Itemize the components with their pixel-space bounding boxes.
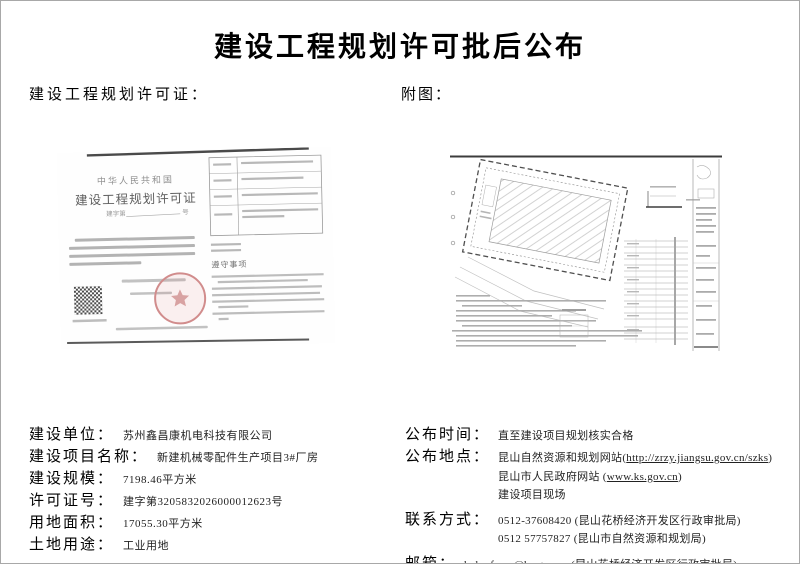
publish-place-line-1: 昆山自然资源和规划网站(http://zrzy.jiangsu.gov.cn/s…: [498, 449, 772, 468]
certificate-body-text-lines: [69, 236, 196, 266]
detail-label: 建设单位：: [29, 423, 114, 444]
building-footprint: [489, 179, 611, 263]
detail-row-build-unit: 建设单位： 苏州鑫昌康机电科技有限公司: [29, 423, 319, 445]
qr-code: [74, 286, 103, 315]
email-address-link[interactable]: hqbmfwzx@ks.gov.cn: [464, 559, 568, 564]
place-line-suffix: ): [678, 471, 682, 483]
site-plan-drawing: [450, 155, 722, 357]
certificate-scan: 中华人民共和国 建设工程规划许可证 建字第 号: [57, 147, 335, 349]
publish-time-label: 公布时间：: [405, 423, 490, 444]
compliance-list-lines: [212, 273, 325, 320]
page-title: 建设工程规划许可批后公布: [1, 25, 799, 65]
detail-row-scale: 建设规模： 7198.46平方米: [29, 467, 319, 489]
site-plan-image: [450, 155, 722, 357]
detail-label: 建设规模：: [29, 467, 114, 488]
detail-value: 苏州鑫昌康机电科技有限公司: [123, 427, 273, 443]
contact-phone-1: 0512-37608420 (昆山花桥经济开发区行政审批局): [498, 512, 741, 531]
email-note: (昆山花桥经济开发区行政审批局): [568, 559, 737, 564]
publish-place-line-3: 建设项目现场: [498, 486, 772, 505]
plan-notes: [452, 295, 642, 347]
contact-label: 联系方式：: [405, 508, 490, 529]
title-block: [693, 159, 719, 351]
announcement-page: 建设工程规划许可批后公布 建设工程规划许可证： 附图： 中华人民共和国 建设工程…: [0, 0, 800, 564]
site-boundary: [463, 160, 628, 281]
attachment-section-label: 附图：: [401, 83, 452, 104]
margin-ticks: [451, 191, 455, 245]
detail-value: 工业用地: [123, 537, 169, 553]
certificate-title-text: 建设工程规划许可证: [75, 190, 197, 208]
detail-row-land-area: 用地面积： 17055.30平方米: [29, 511, 319, 533]
contact-row: 联系方式： 0512-37608420 (昆山花桥经济开发区行政审批局) 051…: [405, 508, 790, 549]
contact-phone-2: 0512 57757827 (昆山市自然资源和规划局): [498, 530, 741, 549]
publish-time-value: 直至建设项目规划核实合格: [498, 427, 634, 446]
certificate-header: 中华人民共和国 建设工程规划许可证 建字第 号: [75, 173, 197, 219]
certificate-country-text: 中华人民共和国: [97, 173, 174, 186]
certificate-number-prefix: 建字第: [106, 209, 126, 218]
compliance-title-text: 遵守事项: [211, 259, 247, 270]
official-seal: [155, 273, 206, 324]
detail-value: 建字第3205832026000012623号: [123, 493, 283, 509]
detail-value: 17055.30平方米: [123, 515, 203, 531]
email-line: hqbmfwzx@ks.gov.cn (昆山花桥经济开发区行政审批局): [464, 556, 737, 564]
place-line-suffix: ): [768, 452, 772, 464]
permit-section-label: 建设工程规划许可证：: [29, 83, 209, 104]
publish-place-line-2: 昆山市人民政府网站 (www.ks.gov.cn): [498, 468, 772, 487]
project-details-list: 建设单位： 苏州鑫昌康机电科技有限公司 建设项目名称： 新建机械零配件生产项目3…: [29, 423, 319, 555]
detail-row-permit-number: 许可证号： 建字第3205832026000012623号: [29, 489, 319, 511]
certificate-info-table: [209, 155, 323, 252]
detail-value: 7198.46平方米: [123, 471, 197, 487]
section-detail: [646, 186, 700, 207]
gov-site-link[interactable]: www.ks.gov.cn: [607, 471, 678, 483]
detail-row-land-use: 土地用途： 工业用地: [29, 533, 319, 555]
planning-site-link[interactable]: http://zrzy.jiangsu.gov.cn/szks: [626, 452, 768, 464]
place-site-name: 昆山自然资源和规划网站(: [498, 452, 626, 464]
detail-row-project-name: 建设项目名称： 新建机械零配件生产项目3#厂房: [29, 445, 319, 467]
permit-certificate-image: 中华人民共和国 建设工程规划许可证 建字第 号: [57, 147, 335, 349]
detail-label: 建设项目名称：: [29, 445, 148, 466]
publication-details-list: 公布时间： 直至建设项目规划核实合格 公布地点： 昆山自然资源和规划网站(htt…: [405, 423, 790, 564]
place-gov-name: 昆山市人民政府网站 (: [498, 471, 607, 483]
publish-place-label: 公布地点：: [405, 445, 490, 466]
qr-caption-line: [73, 319, 107, 322]
publish-place-row: 公布地点： 昆山自然资源和规划网站(http://zrzy.jiangsu.go…: [405, 445, 790, 505]
email-row: 邮箱： hqbmfwzx@ks.gov.cn (昆山花桥经济开发区行政审批局): [405, 552, 790, 564]
publish-time-row: 公布时间： 直至建设项目规划核实合格: [405, 423, 790, 442]
detail-label: 土地用途：: [29, 533, 114, 554]
indicator-table: [624, 237, 688, 345]
email-label: 邮箱：: [405, 552, 456, 564]
detail-label: 许可证号：: [29, 489, 114, 510]
certificate-number-suffix: 号: [182, 208, 189, 216]
detail-label: 用地面积：: [29, 511, 114, 532]
detail-value: 新建机械零配件生产项目3#厂房: [157, 449, 319, 465]
